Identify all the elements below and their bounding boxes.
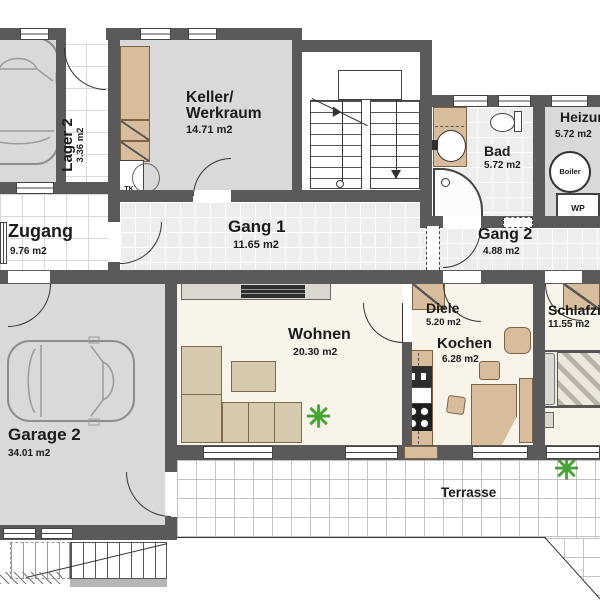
diele-label: Diele <box>426 301 459 316</box>
exterior-stairs-base <box>70 579 167 587</box>
garage2-area: 34.01 m2 <box>8 449 50 460</box>
gang2-area: 4.88 m2 <box>483 247 520 258</box>
floor-plan: TK Boiler WP ✳ <box>0 0 600 600</box>
chair <box>446 395 466 415</box>
boiler-label: Boiler <box>559 168 580 176</box>
gang1-area: 11.65 m2 <box>233 240 279 252</box>
sofa-cushion-line-2 <box>248 403 249 442</box>
door-leaf <box>402 303 403 343</box>
window <box>203 446 273 459</box>
wohnen-label: Wohnen <box>288 327 351 344</box>
terrace-door <box>404 446 438 459</box>
keller-label: Keller/ Werkraum 14.71 m2 <box>186 90 262 137</box>
heizung-label: Heizung <box>560 110 600 125</box>
garage-vent <box>41 528 73 539</box>
wall <box>165 517 177 540</box>
door-opening <box>545 271 582 283</box>
keller-cabinet <box>120 46 150 120</box>
stair-guide-right <box>396 100 397 178</box>
ground-hatch <box>0 572 62 584</box>
window <box>453 95 488 107</box>
wall <box>165 284 177 472</box>
keller-shelf-2 <box>120 141 150 162</box>
wohnen-area: 20.30 m2 <box>293 347 337 358</box>
chair <box>504 327 531 354</box>
keller-shelf-1 <box>120 120 150 141</box>
wall <box>108 28 120 202</box>
wall <box>533 284 545 445</box>
bath-counter-dash <box>435 126 464 127</box>
toilet-tank <box>514 111 522 132</box>
sofa-cushion-line-1 <box>182 394 221 395</box>
wall <box>420 40 432 228</box>
zugang-area: 9.76 m2 <box>10 247 47 258</box>
window <box>140 28 171 40</box>
lager2-label: Lager 2 3.36 m2 <box>60 100 100 190</box>
coffee-table <box>231 361 276 392</box>
door-opening <box>443 271 481 283</box>
toilet-icon <box>490 113 515 132</box>
wall <box>108 262 120 270</box>
garage2-label: Garage 2 <box>8 426 81 444</box>
door-opening <box>8 271 50 283</box>
tv-unit <box>241 285 305 298</box>
zugang-label: Zugang <box>8 222 73 241</box>
window <box>0 222 7 264</box>
window <box>345 446 398 459</box>
schlafzimmer-label: Schlafzimmer <box>548 303 600 318</box>
heat-pump-label: WP <box>571 204 585 213</box>
keller-name-line1: Keller/ <box>186 90 262 106</box>
stair-arrow-down-icon <box>391 170 401 179</box>
lager2-area: 3.36 m2 <box>76 100 86 190</box>
stair-start-dot <box>336 180 344 188</box>
terrasse-label: Terrasse <box>441 486 496 500</box>
lager2-name: Lager 2 <box>60 100 76 190</box>
burner <box>420 419 429 428</box>
boiler: Boiler <box>549 151 591 193</box>
stair-landing <box>338 70 402 100</box>
bad-area: 5.72 m2 <box>484 161 521 172</box>
wall <box>108 202 120 222</box>
car-icon <box>5 336 137 426</box>
window <box>20 28 49 40</box>
burner <box>420 407 429 416</box>
sink-tap <box>432 140 438 150</box>
gang2-label: Gang 2 <box>478 227 532 244</box>
gang1-label: Gang 1 <box>228 218 286 236</box>
window <box>498 95 531 107</box>
wall <box>292 40 302 202</box>
plant-icon: ✳ <box>306 403 331 433</box>
chair <box>479 361 500 380</box>
door-opening-dashed <box>426 226 440 270</box>
heizung-area: 5.72 m2 <box>555 130 592 141</box>
wall <box>402 342 412 445</box>
keller-area: 14.71 m2 <box>186 125 262 137</box>
window <box>546 446 600 459</box>
sofa-cushion-line-3 <box>274 403 275 442</box>
kochen-label: Kochen <box>437 336 492 352</box>
bed-duvet <box>557 352 600 406</box>
wall <box>533 95 545 228</box>
boiler-tank-small <box>132 163 160 193</box>
sink-icon <box>436 130 466 162</box>
bad-label: Bad <box>484 144 510 159</box>
wall <box>292 40 432 52</box>
garage-vent <box>3 528 36 539</box>
kitchen-side-cabinet <box>519 378 533 443</box>
terrace-tiles <box>177 460 600 538</box>
window <box>551 95 588 107</box>
window <box>188 28 217 40</box>
coffee-machine-dot <box>421 373 426 380</box>
wall <box>112 190 432 202</box>
door-garage1-zugang <box>16 182 54 194</box>
keller-name-line2: Werkraum <box>186 106 262 122</box>
stair-guide-left <box>342 100 343 184</box>
terrace-edge <box>177 537 546 538</box>
wall <box>0 270 600 284</box>
shower-drain <box>441 178 450 187</box>
car-icon <box>0 35 63 167</box>
sofa-horizontal <box>222 402 302 443</box>
diele-area: 5.20 m2 <box>426 318 461 328</box>
door-opening <box>443 216 481 228</box>
kochen-area: 6.28 m2 <box>442 355 479 366</box>
schlafzimmer-area: 11.55 m2 <box>548 320 590 331</box>
window <box>472 446 528 459</box>
